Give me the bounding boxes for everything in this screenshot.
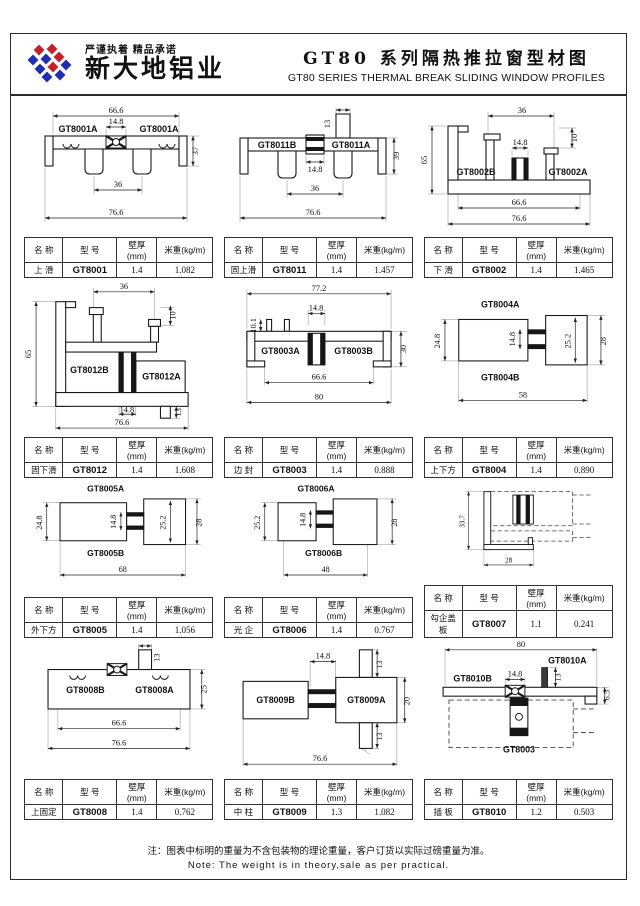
col-thickness-header: 壁厚(mm): [117, 438, 157, 463]
drawing-gt8004: 24.8 14.8 25.2 28 58 GT8004A GT8004B: [420, 278, 616, 434]
profile-name: 下 滑: [424, 263, 462, 278]
drawing-gt8007: 33.7 28: [420, 478, 616, 582]
col-weight-header: 米重(kg/m): [157, 438, 213, 463]
profile-weight: 1.608: [157, 463, 213, 478]
part-label: GT8006A: [298, 483, 335, 493]
col-model-header: 型 号: [462, 238, 516, 263]
profile-model: GT8006: [262, 623, 316, 638]
profile-cell-gt8006: 25.2 14.8 28 48 GT8006A GT8006B 名 称型 号壁厚…: [219, 478, 419, 638]
profile-model: GT8007: [462, 611, 516, 638]
profile-name: 外下方: [25, 623, 63, 638]
part-label: GT8005B: [87, 548, 124, 558]
col-weight-header: 米重(kg/m): [556, 780, 612, 805]
company-logo-icon: [25, 42, 77, 86]
page-frame: 严谨执着 精品承诺 新大地铝业 GT80 系列隔热推拉窗型材图 GT80 SER…: [10, 33, 627, 880]
part-label: GT8003A: [262, 346, 301, 356]
spec-table-gt8004: 名 称型 号壁厚(mm)米重(kg/m) 上下方GT80041.40.890: [424, 437, 613, 478]
dim-label: 14.8: [508, 332, 517, 347]
spec-table-gt8006: 名 称型 号壁厚(mm)米重(kg/m) 光 企GT80061.40.767: [224, 597, 413, 638]
col-weight-header: 米重(kg/m): [157, 238, 213, 263]
part-label: GT8001A: [139, 124, 179, 134]
mating-profile-dashed: [491, 492, 593, 541]
dim-label: 13: [322, 120, 332, 129]
dim-label: 28: [390, 519, 399, 527]
col-thickness-header: 壁厚(mm): [516, 780, 556, 805]
drawing-gt8002: 36 10 14.8 65 66.6 76.6 GT8002B GT8002A: [420, 102, 616, 234]
dim-label: 25.2: [253, 516, 262, 530]
dim-label: 24.8: [433, 334, 442, 349]
dim-label: 58: [519, 390, 527, 399]
col-weight-header: 米重(kg/m): [356, 238, 412, 263]
dim-label: 80: [315, 392, 323, 401]
dim-label: 14.8: [119, 405, 134, 414]
profile-weight: 1.457: [356, 263, 412, 278]
drawing-gt8001: 66.6 14.8 37 36 76.6 GT8001A GT8001A: [21, 102, 217, 234]
dim-label: 14.8: [299, 513, 308, 527]
col-model-header: 型 号: [262, 438, 316, 463]
col-weight-header: 米重(kg/m): [356, 438, 412, 463]
dim-label: 48: [322, 565, 330, 574]
profile-weight: 0.890: [556, 463, 612, 478]
profile-thickness: 1.3: [316, 805, 356, 820]
dim-label: 30: [399, 345, 408, 353]
col-name-header: 名 称: [424, 438, 462, 463]
profiles-grid: 66.6 14.8 37 36 76.6 GT8001A GT8001A 名 称…: [11, 96, 626, 820]
profile-outline: [48, 650, 190, 709]
profile-thickness: 1.4: [516, 463, 556, 478]
profile-cell-gt8012: 65 36 10 14.8 13 76.6 GT8012B GT8012A 名 …: [19, 278, 219, 478]
part-label: GT8010B: [454, 673, 492, 683]
part-label: GT8008B: [66, 685, 104, 695]
part-label: GT8011A: [332, 140, 371, 150]
profile-name: 固上滑: [224, 263, 262, 278]
dim-label: 25.2: [158, 516, 167, 530]
col-weight-header: 米重(kg/m): [556, 238, 612, 263]
profile-model: GT8002: [462, 263, 516, 278]
col-model-header: 型 号: [462, 586, 516, 611]
profile-model: GT8001: [63, 263, 117, 278]
dim-label: 36: [311, 183, 320, 193]
drawing-gt8009: 14.8 13 20 13 76.6 GT8009B GT8009A: [220, 638, 416, 776]
col-thickness-header: 壁厚(mm): [316, 438, 356, 463]
part-label: GT8006B: [306, 548, 343, 558]
spec-table-gt8009: 名 称型 号壁厚(mm)米重(kg/m) 中 柱GT80091.31.082: [224, 779, 413, 820]
footer-note-cn: 注：图表中标明的重量为不含包装物的理论重量，客户订货以实际过磅重量为准。: [11, 845, 626, 859]
dim-label: 24.8: [35, 516, 44, 530]
dim-label: 14.8: [508, 669, 523, 678]
dim-label: 14.8: [308, 164, 323, 174]
logo-block: 严谨执着 精品承诺 新大地铝业: [11, 42, 273, 86]
company-name: 新大地铝业: [85, 56, 225, 82]
col-model-header: 型 号: [462, 780, 516, 805]
profile-cell-gt8003: 77.2 10.1 14.8 30 66.6 80 GT8003A GT8003…: [219, 278, 419, 478]
dim-label: 39: [391, 152, 401, 161]
col-thickness-header: 壁厚(mm): [316, 780, 356, 805]
profile-thickness: 1.4: [117, 623, 157, 638]
title-block: GT80 系列隔热推拉窗型材图 GT80 SERIES THERMAL BREA…: [273, 44, 626, 84]
dim-label: 76.6: [108, 207, 123, 217]
profile-name: 中 柱: [224, 805, 262, 820]
profile-weight: 0.241: [556, 611, 612, 638]
dim-label: 14.8: [108, 116, 123, 126]
part-label: GT8009A: [348, 695, 387, 705]
profile-outline: [45, 136, 187, 174]
spec-table-gt8002: 名 称型 号壁厚(mm)米重(kg/m) 下 滑GT80021.41.465: [424, 237, 613, 278]
part-label: GT8009B: [257, 695, 295, 705]
col-model-header: 型 号: [63, 780, 117, 805]
dim-label: 13: [376, 732, 385, 740]
col-model-header: 型 号: [262, 598, 316, 623]
part-label: GT8005A: [87, 483, 124, 493]
profile-name: 上固定: [25, 805, 63, 820]
profile-weight: 0.503: [556, 805, 612, 820]
profile-name: 勾企盖板: [424, 611, 462, 638]
dim-label: 28: [195, 519, 204, 527]
profile-weight: 0.888: [356, 463, 412, 478]
col-thickness-header: 壁厚(mm): [516, 586, 556, 611]
dim-label: 6.5: [603, 690, 612, 700]
part-label: GT8012B: [70, 365, 108, 375]
part-label: GT8004A: [481, 300, 520, 310]
col-weight-header: 米重(kg/m): [157, 780, 213, 805]
dim-label: 80: [517, 640, 525, 649]
part-label: GT8003: [503, 744, 535, 754]
footer-note-en: Note: The weight is in theory,sale as pe…: [11, 859, 626, 873]
profile-model: GT8008: [63, 805, 117, 820]
dim-label: 14.8: [513, 137, 528, 147]
col-name-header: 名 称: [224, 438, 262, 463]
col-name-header: 名 称: [25, 598, 63, 623]
dim-label: 76.6: [313, 754, 328, 763]
profile-model: GT8005: [63, 623, 117, 638]
profile-name: 插 板: [424, 805, 462, 820]
spec-table-gt8007: 名 称型 号壁厚(mm)米重(kg/m) 勾企盖板GT80071.10.241: [424, 585, 613, 638]
col-name-header: 名 称: [25, 438, 63, 463]
spec-table-gt8011: 名 称型 号壁厚(mm)米重(kg/m) 固上滑GT80111.41.457: [224, 237, 413, 278]
dim-label: 14.8: [109, 515, 118, 529]
dim-label: 66.6: [512, 197, 527, 207]
dim-label: 76.6: [512, 213, 527, 223]
col-weight-header: 米重(kg/m): [556, 586, 612, 611]
col-weight-header: 米重(kg/m): [356, 598, 412, 623]
col-name-header: 名 称: [224, 780, 262, 805]
part-label: GT8012A: [142, 372, 181, 382]
dim-label: 36: [518, 105, 527, 115]
dim-label: 36: [114, 179, 123, 189]
profile-model: GT8009: [262, 805, 316, 820]
profile-cell-gt8002: 36 10 14.8 65 66.6 76.6 GT8002B GT8002A …: [418, 102, 618, 278]
col-thickness-header: 壁厚(mm): [316, 598, 356, 623]
dim-label: 25: [200, 685, 209, 693]
header: 严谨执着 精品承诺 新大地铝业 GT80 系列隔热推拉窗型材图 GT80 SER…: [11, 34, 626, 96]
col-thickness-header: 壁厚(mm): [117, 598, 157, 623]
profile-thickness: 1.4: [117, 805, 157, 820]
profile-weight: 1.082: [356, 805, 412, 820]
col-model-header: 型 号: [262, 780, 316, 805]
dim-label: 66.6: [312, 373, 327, 382]
col-name-header: 名 称: [424, 238, 462, 263]
col-model-header: 型 号: [63, 598, 117, 623]
dim-label: 76.6: [114, 418, 129, 427]
spec-table-gt8003: 名 称型 号壁厚(mm)米重(kg/m) 边 封GT80031.40.888: [224, 437, 413, 478]
dim-label: 13: [554, 673, 563, 681]
profile-weight: 0.762: [157, 805, 213, 820]
part-label: GT8002A: [549, 167, 589, 177]
dim-label: 66.6: [108, 105, 123, 115]
col-thickness-header: 壁厚(mm): [316, 238, 356, 263]
profile-thickness: 1.4: [516, 263, 556, 278]
profile-cell-gt8001: 66.6 14.8 37 36 76.6 GT8001A GT8001A 名 称…: [19, 102, 219, 278]
part-label: GT8008A: [135, 685, 174, 695]
profile-thickness: 1.4: [316, 263, 356, 278]
part-label: GT8002B: [457, 167, 497, 177]
drawing-gt8012: 65 36 10 14.8 13 76.6 GT8012B GT8012A: [21, 278, 217, 434]
col-weight-header: 米重(kg/m): [556, 438, 612, 463]
drawing-gt8005: 24.8 14.8 25.2 28 68 GT8005A GT8005B: [21, 478, 217, 594]
profile-weight: 1.465: [556, 263, 612, 278]
dim-label: 77.2: [312, 284, 327, 293]
col-model-header: 型 号: [462, 438, 516, 463]
col-model-header: 型 号: [262, 238, 316, 263]
col-model-header: 型 号: [63, 438, 117, 463]
dim-label: 13: [174, 408, 183, 416]
profile-weight: 1.056: [157, 623, 213, 638]
profile-cell-gt8009: 14.8 13 20 13 76.6 GT8009B GT8009A 名 称型 …: [219, 638, 419, 820]
dim-label: 36: [120, 282, 128, 291]
dim-label: 65: [420, 156, 429, 165]
part-label: GT8001A: [58, 124, 98, 134]
drawing-gt8008: 13 25 66.6 76.6 GT8008B GT8008A: [21, 638, 217, 776]
profile-name: 边 封: [224, 463, 262, 478]
profile-model: GT8003: [262, 463, 316, 478]
dim-label: 13: [376, 660, 385, 668]
page-title: GT80 系列隔热推拉窗型材图: [273, 44, 620, 69]
col-model-header: 型 号: [63, 238, 117, 263]
profile-name: 固下滑: [25, 463, 63, 478]
profile-cell-gt8007: 33.7 28 名 称型 号壁厚(mm)米重(kg/m) 勾企盖板GT80071…: [418, 478, 618, 638]
drawing-gt8010: 80 14.8 13 6.5 GT8010A GT8010B GT8003: [420, 638, 616, 776]
spec-table-gt8012: 名 称型 号壁厚(mm)米重(kg/m) 固下滑GT80121.41.608: [24, 437, 213, 478]
dim-label: 10.1: [249, 318, 258, 333]
part-label: GT8004B: [481, 373, 519, 383]
dim-label: 13: [152, 654, 161, 662]
page-title-en: GT80 SERIES THERMAL BREAK SLIDING WINDOW…: [273, 72, 620, 84]
catalog-page: { "header": { "slogan": "严谨执着 精品承诺", "co…: [0, 0, 640, 906]
part-label: GT8011B: [258, 140, 297, 150]
col-thickness-header: 壁厚(mm): [516, 438, 556, 463]
col-thickness-header: 壁厚(mm): [117, 780, 157, 805]
dim-label: 25.2: [563, 334, 572, 349]
profile-cell-gt8011: 13 14.8 39 36 76.6 GT8011B GT8011A 名 称型 …: [219, 102, 419, 278]
profile-name: 上 滑: [25, 263, 63, 278]
dim-label: 37: [190, 147, 200, 156]
dim-label: 65: [24, 350, 33, 358]
col-thickness-header: 壁厚(mm): [516, 238, 556, 263]
profile-cell-gt8008: 13 25 66.6 76.6 GT8008B GT8008A 名 称型 号壁厚…: [19, 638, 219, 820]
spec-table-gt8010: 名 称型 号壁厚(mm)米重(kg/m) 插 板GT80101.20.503: [424, 779, 613, 820]
profile-model: GT8012: [63, 463, 117, 478]
col-name-header: 名 称: [424, 586, 462, 611]
dim-label: 28: [599, 337, 608, 345]
profile-cell-gt8004: 24.8 14.8 25.2 28 58 GT8004A GT8004B 名 称…: [418, 278, 618, 478]
col-name-header: 名 称: [424, 780, 462, 805]
dim-label: 68: [119, 565, 127, 574]
profile-model: GT8010: [462, 805, 516, 820]
profile-model: GT8004: [462, 463, 516, 478]
profile-cell-gt8005: 24.8 14.8 25.2 28 68 GT8005A GT8005B 名 称…: [19, 478, 219, 638]
drawing-gt8003: 77.2 10.1 14.8 30 66.6 80 GT8003A GT8003…: [220, 278, 416, 434]
dim-label: 14.8: [316, 652, 331, 661]
part-label: GT8003B: [335, 346, 373, 356]
col-weight-header: 米重(kg/m): [356, 780, 412, 805]
profile-weight: 0.767: [356, 623, 412, 638]
profile-outline: [279, 499, 378, 545]
dim-label: 76.6: [306, 207, 321, 217]
part-label: GT8010A: [548, 656, 587, 666]
spec-table-gt8005: 名 称型 号壁厚(mm)米重(kg/m) 外下方GT80051.41.056: [24, 597, 213, 638]
drawing-gt8006: 25.2 14.8 28 48 GT8006A GT8006B: [220, 478, 416, 594]
dim-label: 20: [403, 697, 412, 705]
col-name-header: 名 称: [224, 238, 262, 263]
profile-model: GT8011: [262, 263, 316, 278]
dim-label: 66.6: [112, 719, 127, 728]
profile-name: 上下方: [424, 463, 462, 478]
profile-name: 光 企: [224, 623, 262, 638]
dim-label: 14.8: [309, 304, 324, 313]
spec-table-gt8001: 名 称型 号壁厚(mm)米重(kg/m) 上 滑GT80011.41.082: [24, 237, 213, 278]
profile-thickness: 1.1: [516, 611, 556, 638]
dim-label: 10: [569, 134, 579, 143]
dim-label: 33.7: [458, 515, 466, 528]
col-name-header: 名 称: [25, 238, 63, 263]
col-name-header: 名 称: [25, 780, 63, 805]
profile-thickness: 1.4: [316, 463, 356, 478]
dim-label: 76.6: [112, 738, 127, 747]
footer-note: 注：图表中标明的重量为不含包装物的理论重量，客户订货以实际过磅重量为准。 Not…: [11, 845, 626, 874]
company-text: 严谨执着 精品承诺 新大地铝业: [85, 45, 225, 82]
profile-thickness: 1.4: [117, 263, 157, 278]
col-name-header: 名 称: [224, 598, 262, 623]
col-thickness-header: 壁厚(mm): [117, 238, 157, 263]
profile-outline: [247, 319, 391, 366]
profile-thickness: 1.4: [117, 463, 157, 478]
profile-thickness: 1.4: [316, 623, 356, 638]
spec-table-gt8008: 名 称型 号壁厚(mm)米重(kg/m) 上固定GT80081.40.762: [24, 779, 213, 820]
profile-thickness: 1.2: [516, 805, 556, 820]
col-weight-header: 米重(kg/m): [157, 598, 213, 623]
dim-label: 10: [168, 311, 177, 319]
profile-cell-gt8010: 80 14.8 13 6.5 GT8010A GT8010B GT8003 名 …: [418, 638, 618, 820]
dim-label: 28: [505, 556, 513, 564]
profile-weight: 1.082: [157, 263, 213, 278]
drawing-gt8011: 13 14.8 39 36 76.6 GT8011B GT8011A: [220, 102, 416, 234]
